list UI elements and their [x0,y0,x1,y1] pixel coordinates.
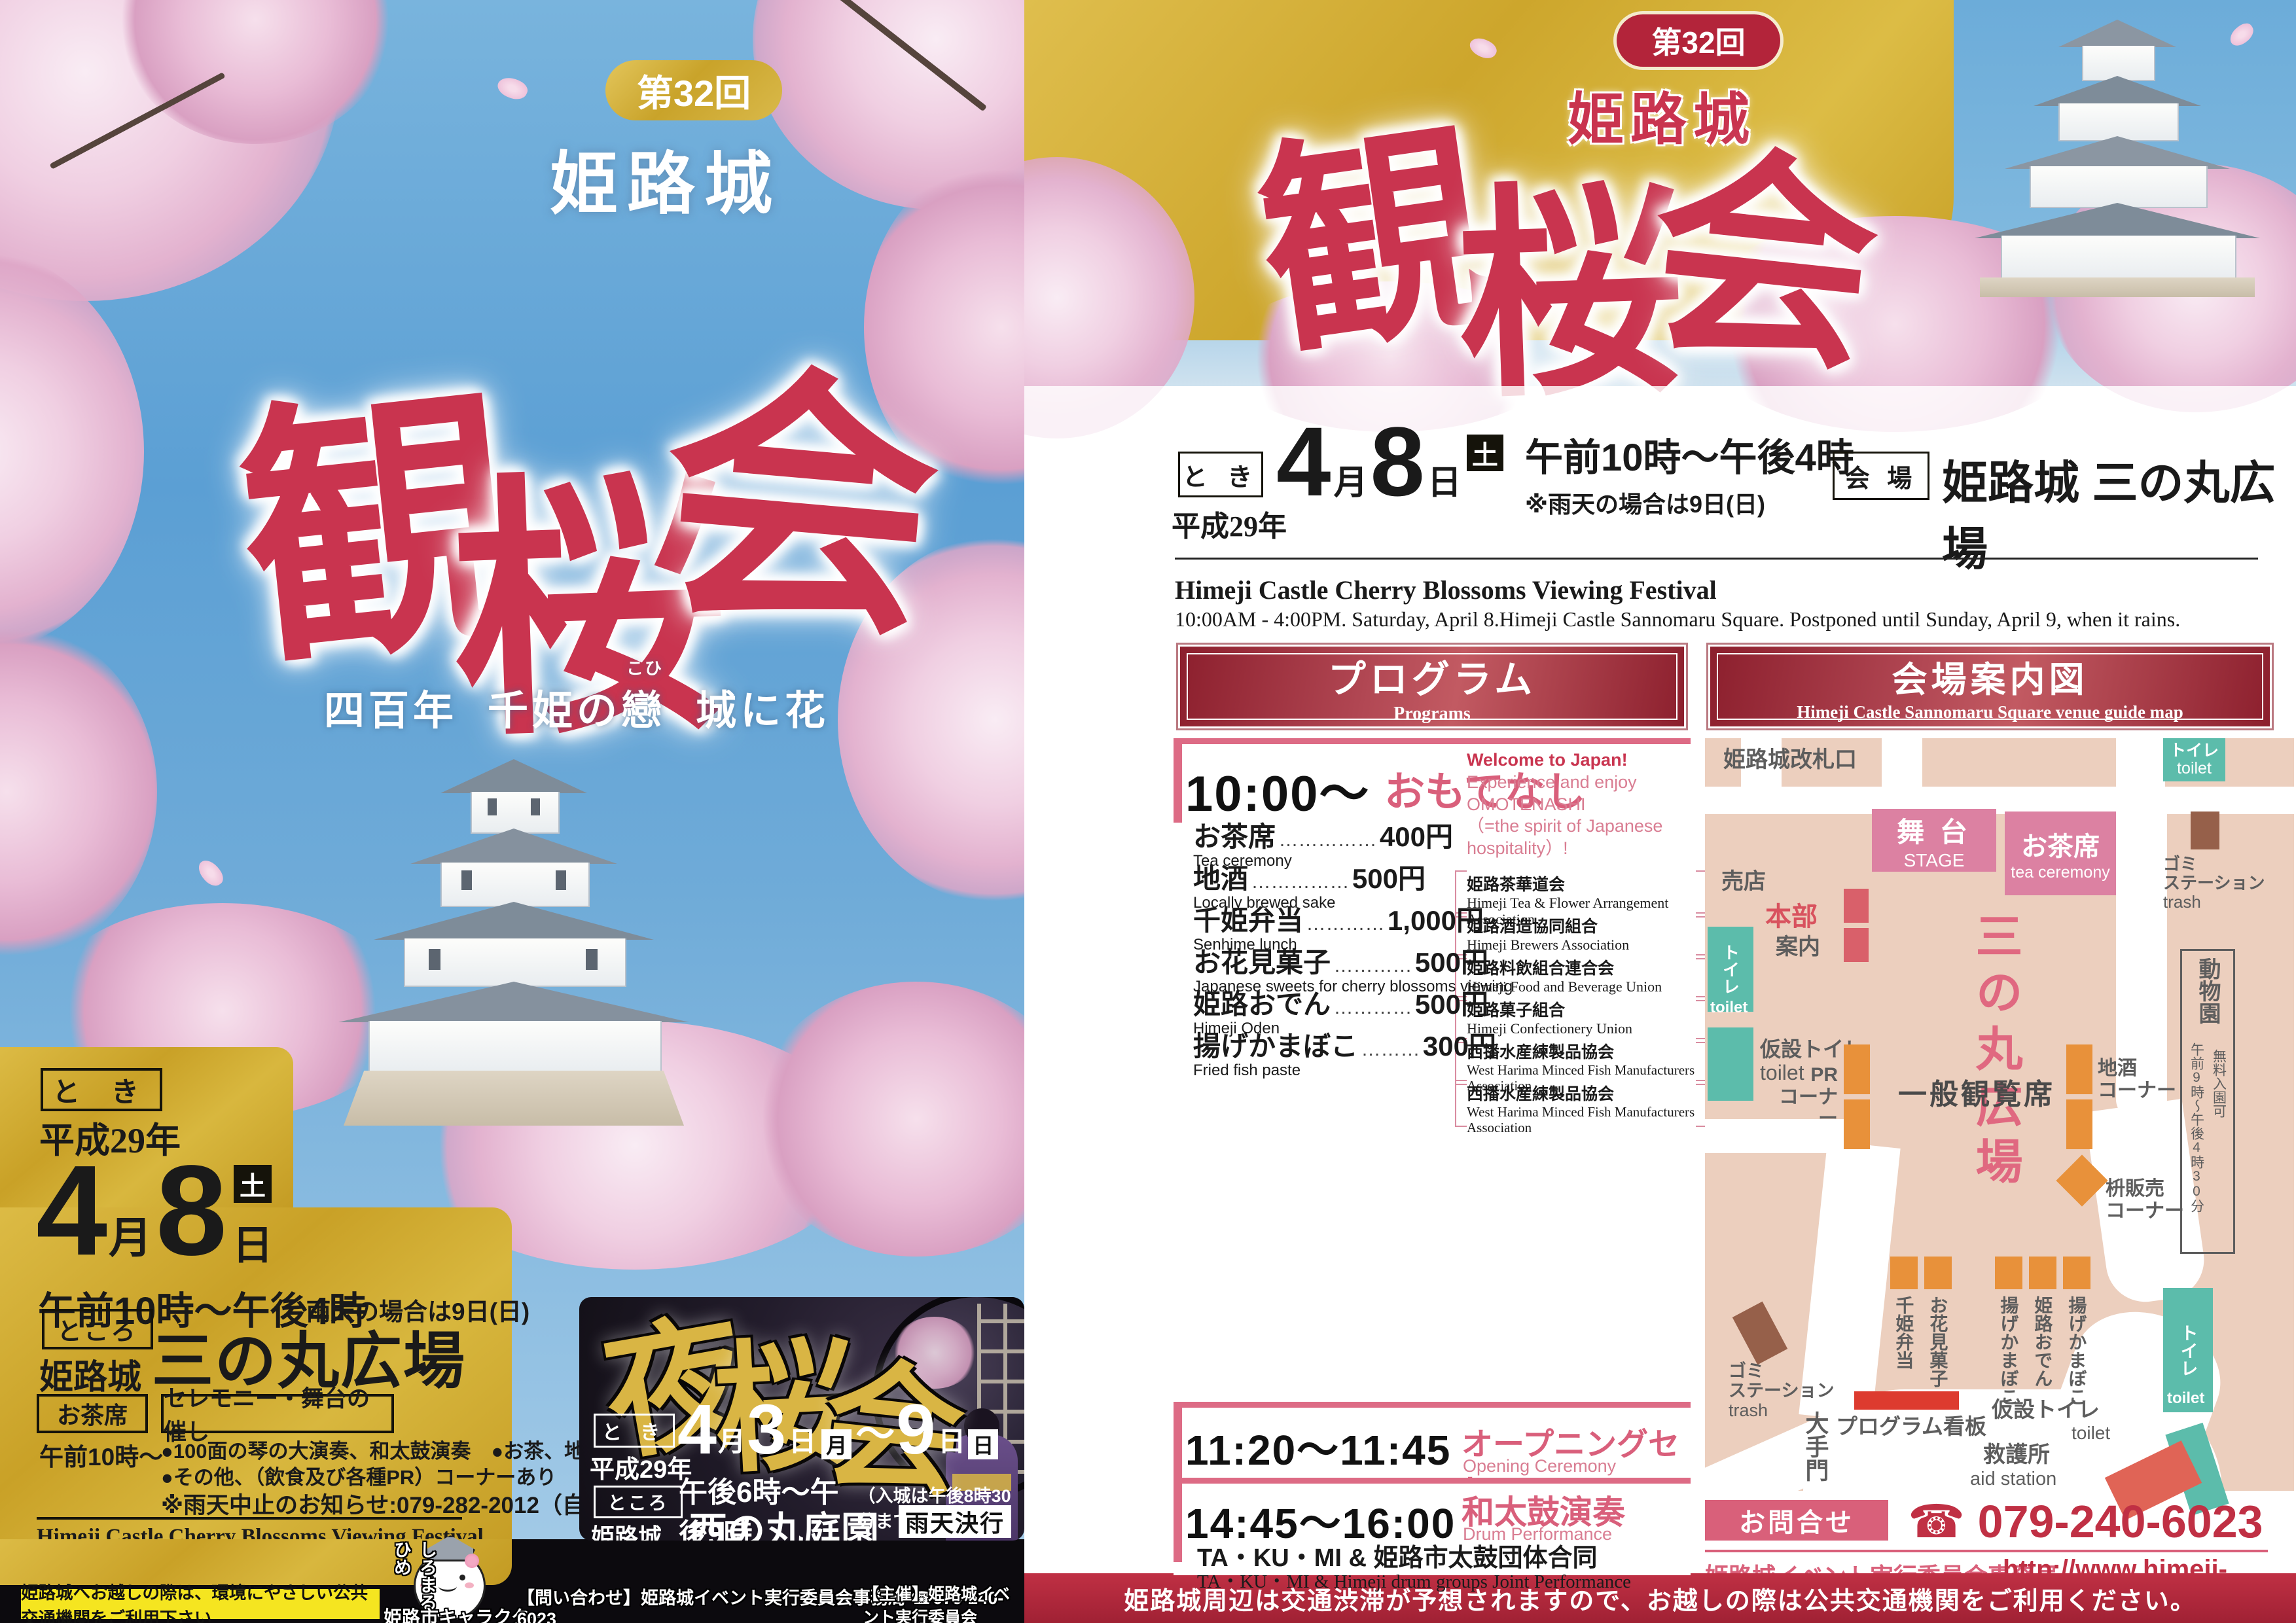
night-venue: 西の丸庭園 [689,1500,879,1541]
tokoro-label-box: ところ [42,1309,153,1349]
masu1: 枡販売 [2106,1178,2184,1200]
trash-jp2: ステーション [2163,874,2265,893]
zoo3: 無料入園可 [2211,1049,2227,1118]
night-date: 4 月 3 日 月 ～ 9 日 日 [677,1394,998,1465]
host-label: 【主催】 [863,1585,928,1603]
item-dots: ……… [1361,1039,1420,1060]
inq-label: 【問い合わせ】 [517,1588,641,1608]
map-jizake-label: 地酒 コーナー [2098,1058,2176,1101]
night-panel: 夜 桜 会 と き 平成29年 4 月 3 日 月 ～ 9 日 日 午後6時～午… [579,1297,1024,1541]
programs-subtitle: Programs [1393,704,1471,724]
blossom-cluster [0,249,144,654]
item-price: 400円 [1380,821,1453,852]
tea-en: tea ceremony [2011,863,2109,882]
tea-jp: お茶席 [2021,825,2100,863]
map-honbu-box [1844,889,1869,923]
map-otemon-label: 大手門 [1802,1411,1828,1482]
right-toki-box: と き [1178,452,1263,497]
tea-time: 午前10時～ [39,1437,163,1472]
map-aid-en: aid station [1970,1469,2056,1489]
night-d2-unit: 日 [935,1419,968,1465]
map-seats-label: 一般観覧席 [1898,1071,2055,1113]
night-d1-unit: 日 [786,1419,819,1465]
night-d2-num: 9 [896,1394,935,1465]
map-toilet-left-en: toilet [1710,999,1748,1017]
castle-illustration [298,759,730,1126]
title-char-kai: 会 [647,270,956,690]
item-price: 300円 [1423,1031,1496,1061]
map-shop-label: 売店 [1721,869,1766,894]
map-trash-top-box [2191,811,2219,849]
map-annai-box [1844,928,1869,962]
left-page: 第32回 姫路城 観 桜 会 四百年 千姫のこひ戀 城に花 [0,0,1024,1623]
zoo2: 午前9時～午後4時30分 [2189,1043,2204,1213]
toilet-en: toilet [2177,760,2212,778]
map-stage: 舞 台 STAGE [1872,809,1996,872]
map-menu-label5: 揚げかまぼこ [2066,1296,2087,1406]
map-trash-bottom-box [1732,1302,1787,1365]
map-subtitle: Himeji Castle Sannomaru Square venue gui… [1797,702,2183,722]
program-section-omotenashi: 10:00～ おもてなし Welcome to Japan! Experienc… [1174,738,1691,1068]
map-kasetsu-br-en: toilet [2072,1423,2110,1443]
right-title-char3: 会 [1636,67,1895,416]
map-plaza-label: 三の丸広場 [1960,912,2029,1193]
date-block: 4 月 8 土 日 [36,1137,494,1275]
map-tea: お茶席 tea ceremony [2005,811,2116,895]
toilet-jp: トイレ [1719,944,1743,995]
map-masu-label: 枡販売 コーナー [2106,1178,2184,1222]
right-day-num: 8 [1370,412,1424,510]
blossom-cluster [0,622,157,962]
map-honbu-label: 本部 [1765,895,1818,933]
night-m-unit: 月 [717,1419,747,1465]
date-month-unit: 月 [107,1203,156,1275]
s1-welcome1: Welcome to Japan! [1467,749,1696,772]
map-title: 会場案内図 [1892,651,2089,702]
item-jp: お花見菓子 [1193,947,1331,978]
date-dow-box: 土 [234,1165,272,1203]
item-en: Fried fish paste [1193,1061,1691,1080]
tagline: 四百年 千姫のこひ戀 城に花 [324,677,913,736]
map-menu-box [1924,1257,1952,1289]
night-m-num: 4 [677,1394,717,1465]
menu-item-row: 揚げかまぼこ ……… 300円 Fried fish paste 西播水産練製品… [1193,1024,1691,1066]
venue-castle: 姫路城 [39,1349,141,1399]
programs-header: プログラム Programs [1178,645,1686,728]
night-tokoro-box: ところ [594,1486,683,1518]
right-month-num: 4 [1276,412,1331,510]
transit-note-bar: 姫路城へお越しの際は、環境にやさしい公共交通機関をご利用下さい [21,1589,380,1619]
jizake1: 地酒 [2098,1058,2176,1080]
s1-welcome2: Experience and enjoy OMOTENASHI [1467,772,1696,816]
right-rain-note: ※雨天の場合は9日(日) [1525,486,1765,520]
map-menu-label4: 姫路おでん [2032,1296,2053,1387]
trash-en: trash [2163,893,2265,912]
right-en2: 10:00AM - 4:00PM. Saturday, April 8.Hime… [1175,607,2180,632]
item-dots: ………… [1306,913,1384,935]
trash-jp1: ゴミ [1729,1361,1834,1381]
item-price: 500円 [1415,989,1488,1020]
map-menu-box [1890,1257,1918,1289]
map-pr-label: PR コーナー [1776,1064,1838,1130]
item-price: 500円 [1352,863,1426,894]
item-org-jp: 西播水産練製品協会 [1467,1085,1696,1104]
map-menu-label3: 揚げかまぼこ [1998,1296,2018,1406]
menu-item-row: 千姫弁当 ………… 1,000円 Senhime lunch 姫路料飲組合連合会… [1193,899,1691,940]
tagline-part2: 千姫のこひ戀 [488,677,666,736]
item-jp: 姫路おでん [1193,989,1331,1020]
map-kasetsu-left-box [1708,1027,1753,1101]
map-menu-label1: 千姫弁当 [1893,1296,1914,1369]
date-dow-col: 土 日 [227,1165,273,1275]
toilet-jp: トイレ [2176,1324,2201,1377]
map-trash-top-label: ゴミ ステーション trash [2163,855,2265,912]
item-org: 西播水産練製品協会 West Harima Minced Fish Manufa… [1455,1080,1708,1127]
item-jp: 揚げかまぼこ [1193,1031,1358,1061]
edition-badge: 第32回 [605,60,782,120]
tagline-part2-text: 千姫の [488,677,621,736]
trash-jp1: ゴミ [2163,855,2265,874]
right-time: 午前10時～午後4時 [1525,427,1854,482]
toki-label-box: と き [41,1068,162,1111]
right-en1: Himeji Castle Cherry Blossoms Viewing Fe… [1175,575,1717,605]
night-toki-box: と き [594,1414,675,1448]
right-era: 平成29年 [1172,503,1287,544]
program-section-drum: 14:45～16:00 和太鼓演奏 Drum Performance TA・KU… [1174,1478,1691,1575]
kaijo-box: 会 場 [1833,452,1929,500]
band-divider [1175,558,2258,560]
tagline-part1: 四百年 [324,677,457,736]
trash-jp2: ステーション [1729,1381,1834,1400]
night-era: 平成29年 [590,1449,692,1485]
map-jizake-box2 [2066,1099,2092,1149]
tagline-kanji: 戀 [621,688,666,734]
stage-en: STAGE [1904,850,1965,871]
item-price: 1,000円 [1388,905,1484,936]
right-info-band: と き 平成29年 4 月 8 日 土 午前10時～午後4時 ※雨天の場合は9日… [1024,386,2296,569]
s2-time: 11:20～11:45 [1185,1417,1451,1477]
map-kanban-bar [1854,1391,1959,1410]
item-price: 500円 [1415,947,1488,978]
item-jp: 地酒 [1193,863,1248,894]
map-kasetsu-br-label: 仮設トイレ [1992,1398,2100,1422]
tagline-ruby-wrap: こひ戀 [621,677,666,736]
map-menu-box [2063,1257,2090,1289]
s2-en: Opening Ceremony [1463,1456,1616,1476]
program-section-opening: 11:20～11:45 オープニングセレモニー Opening Ceremony [1174,1402,1691,1473]
right-month-unit: 月 [1331,455,1370,510]
tagline-ruby: こひ [626,655,663,679]
map-jizake-box1 [2066,1044,2092,1094]
bullet2: ●その他、（飲食及び各種PR）コーナーあり [161,1461,556,1490]
map-pr-box2 [1844,1099,1870,1149]
edition-badge-label: 第32回 [637,64,751,117]
map-menu-box [1995,1257,2022,1289]
map-kanban-label: プログラム看板 [1836,1415,1986,1439]
date-month-num: 4 [36,1147,107,1275]
item-dots: …………… [1278,829,1376,851]
contact-label-box: お問合せ [1705,1500,1888,1541]
castle-photo [1960,20,2274,294]
menu-items: お茶席 …………… 400円 Tea ceremony 姫路茶華道会 Himej… [1193,815,1691,1066]
menu-item-row: お花見菓子 ………… 500円 Japanese sweets for cher… [1193,940,1691,982]
divider [37,1517,462,1520]
map-pr-box1 [1844,1044,1870,1094]
tagline-part3: 城に花 [696,677,829,736]
venue-map: 姫路城改札口 トイレ toilet 舞 台 STAGE お茶席 tea cere… [1705,738,2294,1491]
map-aid-label: 救護所 [1983,1442,2050,1467]
petal [195,856,226,890]
map-annai-label: 案内 [1776,935,1820,959]
map-gate-label: 姫路城改札口 [1723,747,1857,772]
right-date-block: 4 月 8 日 土 [1276,412,1503,510]
map-toilet-top: トイレ toilet [2163,738,2225,781]
right-dow-box: 土 [1467,435,1503,471]
map-header: 会場案内図 Himeji Castle Sannomaru Square ven… [1708,645,2272,728]
night-rain-box: 雨天決行 [899,1505,1011,1538]
contact-tel[interactable]: ☎ 079-240-6023 [1908,1495,2263,1548]
item-dots: ………… [1333,955,1412,976]
map-zoo-box: 動物園 午前9時～午後4時30分 無料入園可 [2180,949,2235,1254]
date-day-unit: 日 [232,1212,273,1271]
menu-item-row: 姫路おでん ………… 500円 Himeji Oden 西播水産練製品協会 We… [1193,982,1691,1024]
night-tilde: ～ [854,1402,896,1465]
night-d1-dow: 月 [821,1429,852,1459]
s6-group-en: TA・KU・MI & Himeji drum groups Joint Perf… [1197,1566,1631,1594]
left-footer-hosts: 【主催】姫路城イベント実行委員会 【共催】姫路市 [863,1581,1024,1623]
item-jp: 千姫弁当 [1193,905,1303,936]
night-d1-num: 3 [747,1394,786,1465]
map-menu-label2: お花見菓子 [1928,1296,1948,1387]
flyer-spread: 第32回 姫路城 観 桜 会 四百年 千姫のこひ戀 城に花 [0,0,2296,1623]
menu-item-row: お茶席 …………… 400円 Tea ceremony 姫路茶華道会 Himej… [1193,815,1691,857]
petal [495,73,530,104]
item-org-en: West Harima Minced Fish Manufacturers As… [1467,1104,1696,1135]
map-toilet-br-en: toilet [2167,1389,2204,1408]
map-menu-box [2029,1257,2056,1289]
contact-divider [1705,1550,2268,1552]
tea-label-box: お茶席 [37,1394,148,1433]
programs-title: プログラム [1328,649,1536,704]
toilet-jp: トイレ [2170,742,2219,760]
pr2: コーナー [1776,1086,1838,1130]
stage-jp: 舞 台 [1897,810,1971,850]
night-d2-dow: 日 [968,1429,998,1459]
right-edition-badge: 第32回 [1617,14,1780,67]
ceremony-label-box: セレモニー・舞台の催し [161,1394,394,1433]
pr1: PR [1776,1064,1838,1086]
item-dots: …………… [1251,871,1349,893]
castle-name-title: 姫路城 [550,128,864,227]
masu2: コーナー [2106,1200,2184,1222]
item-jp: お茶席 [1193,821,1276,852]
jizake2: コーナー [2098,1080,2176,1102]
right-page: 第32回 姫路城 観 桜 会 と き 平成29年 4 月 8 日 土 午前10時… [1024,0,2296,1623]
date-day-num: 8 [156,1147,227,1275]
right-day-unit: 日 [1425,455,1464,510]
item-dots: ………… [1333,997,1412,1018]
menu-item-row: 地酒 …………… 500円 Locally brewed sake 姫路酒造協同… [1193,857,1691,899]
night-castle: 姫路城 [591,1518,662,1541]
